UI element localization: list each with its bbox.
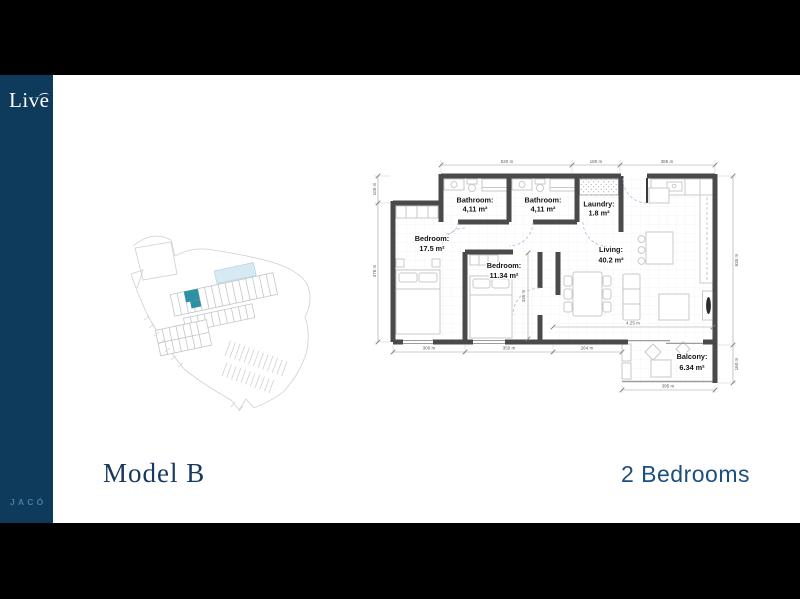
site-parking-rows: [218, 341, 287, 395]
room-area-balcony: 6.34 m²: [679, 363, 705, 372]
dim-left-1: 105 m: [372, 182, 377, 195]
unit-type-label: 2 Bedrooms: [621, 461, 750, 488]
room-label-living: Living:: [599, 245, 623, 254]
dim-top-2: 180 m: [590, 159, 603, 164]
dim-right-1: 635 m: [734, 253, 739, 266]
dim-bottom-1: 300 m: [423, 346, 436, 351]
slide-canvas: Live JACÓ: [0, 0, 800, 599]
room-area-living: 40.2 m²: [598, 256, 624, 265]
slide-stage: Live JACÓ: [0, 75, 800, 523]
top-letterbox: [0, 0, 800, 75]
room-area-laundry: 1.8 m²: [588, 209, 610, 218]
room-area-bathroom1: 4,11 m²: [463, 205, 488, 214]
dim-bottom-2: 350 m: [503, 346, 516, 351]
room-area-bedroom2: 11.34 m²: [490, 271, 519, 280]
dim-bottom-3: 264 m: [581, 346, 594, 351]
dim-interior-horizontal: 4.25 m: [626, 321, 640, 326]
room-label-bedroom1: Bedroom:: [415, 234, 449, 243]
room-area-bathroom2: 4,11 m²: [531, 205, 556, 214]
bottom-letterbox: [0, 523, 800, 599]
floor-plan: 530 m 180 m 385 m 105 m 478 m 635 m 160 …: [370, 143, 770, 405]
dim-top-1: 530 m: [501, 159, 514, 164]
sidebar: Live JACÓ: [0, 75, 53, 523]
room-area-bedroom1: 17.5 m²: [419, 244, 445, 253]
room-label-bathroom1: Bathroom:: [457, 196, 494, 205]
dim-top-3: 385 m: [661, 159, 674, 164]
site-plan-thumbnail: [123, 222, 323, 422]
model-title: Model B: [103, 458, 205, 489]
brand-location-label: JACÓ: [10, 497, 46, 507]
dim-right-2: 160 m: [734, 357, 739, 370]
room-label-bathroom2: Bathroom:: [525, 196, 562, 205]
room-label-bedroom2: Bedroom:: [487, 261, 521, 270]
laundry-counter: [580, 179, 619, 195]
dim-interior-vertical: 335 m: [521, 289, 526, 302]
room-label-laundry: Laundry:: [583, 200, 614, 209]
brand-logo: Live: [9, 88, 49, 113]
tv-icon: [706, 297, 711, 314]
dim-left-2: 478 m: [372, 264, 377, 277]
dim-balcony-bottom: 395 m: [662, 384, 675, 389]
room-label-balcony: Balcony:: [677, 352, 708, 361]
dining-set: [564, 272, 611, 316]
